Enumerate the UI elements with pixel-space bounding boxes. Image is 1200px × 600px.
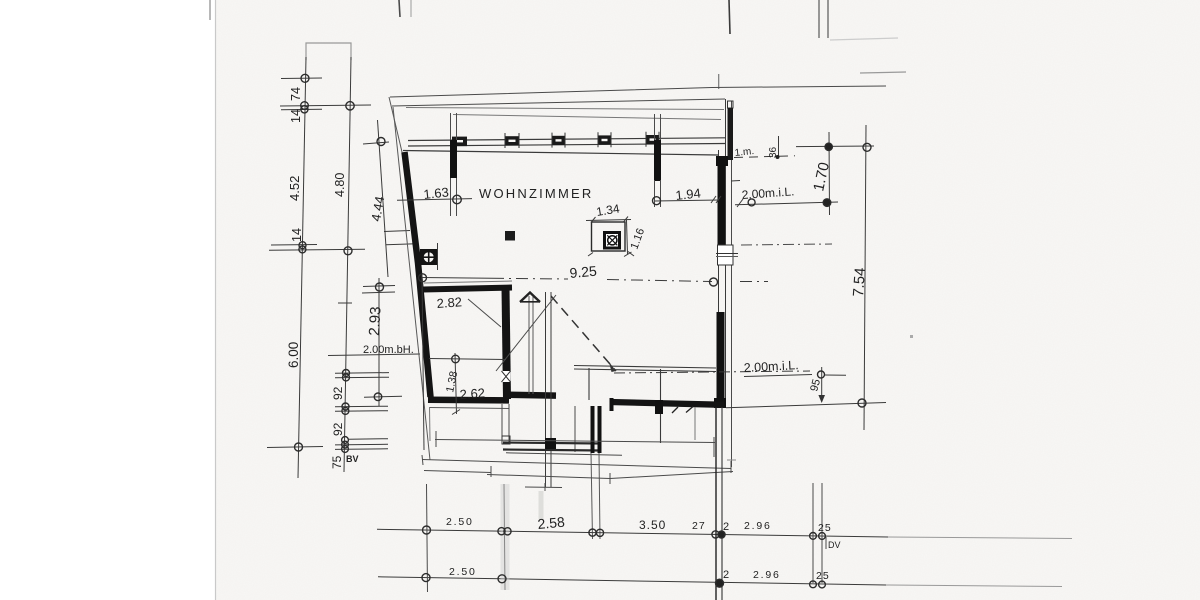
svg-text:92: 92 bbox=[331, 386, 345, 400]
svg-text:3.50: 3.50 bbox=[639, 518, 666, 532]
svg-text:14: 14 bbox=[290, 228, 304, 242]
svg-text:25: 25 bbox=[818, 522, 832, 534]
svg-text:2.58: 2.58 bbox=[537, 514, 566, 532]
svg-text:7.54: 7.54 bbox=[850, 267, 869, 297]
svg-text:74: 74 bbox=[289, 87, 303, 101]
svg-text:4.80: 4.80 bbox=[333, 173, 347, 197]
svg-text:2.96: 2.96 bbox=[744, 520, 772, 532]
svg-text:75: 75 bbox=[330, 455, 344, 469]
svg-text:2.00m.i.L.: 2.00m.i.L. bbox=[743, 358, 799, 375]
svg-text:2: 2 bbox=[723, 521, 729, 533]
svg-text:2.93: 2.93 bbox=[366, 306, 385, 336]
svg-text:2.50: 2.50 bbox=[446, 516, 474, 528]
svg-text:25: 25 bbox=[816, 570, 830, 582]
svg-text:2.96: 2.96 bbox=[753, 569, 781, 581]
svg-text:9.25: 9.25 bbox=[569, 263, 598, 281]
svg-text:6.00: 6.00 bbox=[286, 342, 301, 368]
svg-text:2.00m.bH.: 2.00m.bH. bbox=[363, 344, 414, 356]
svg-text:4.52: 4.52 bbox=[287, 176, 302, 201]
svg-text:1.63: 1.63 bbox=[423, 184, 450, 202]
svg-text:92: 92 bbox=[331, 422, 345, 436]
svg-text:1.94: 1.94 bbox=[675, 185, 702, 203]
svg-text:BV: BV bbox=[346, 454, 359, 464]
svg-text:1.m.: 1.m. bbox=[734, 146, 754, 159]
svg-text:14: 14 bbox=[289, 109, 303, 123]
svg-text:2.62: 2.62 bbox=[459, 385, 485, 402]
svg-text:27: 27 bbox=[692, 520, 706, 532]
svg-text:2: 2 bbox=[723, 569, 729, 581]
svg-text:DV: DV bbox=[828, 540, 841, 550]
svg-text:2.82: 2.82 bbox=[436, 294, 462, 311]
svg-text:WOHNZIMMER: WOHNZIMMER bbox=[479, 186, 593, 201]
svg-text:36: 36 bbox=[768, 146, 779, 158]
svg-text:2.50: 2.50 bbox=[449, 566, 477, 578]
